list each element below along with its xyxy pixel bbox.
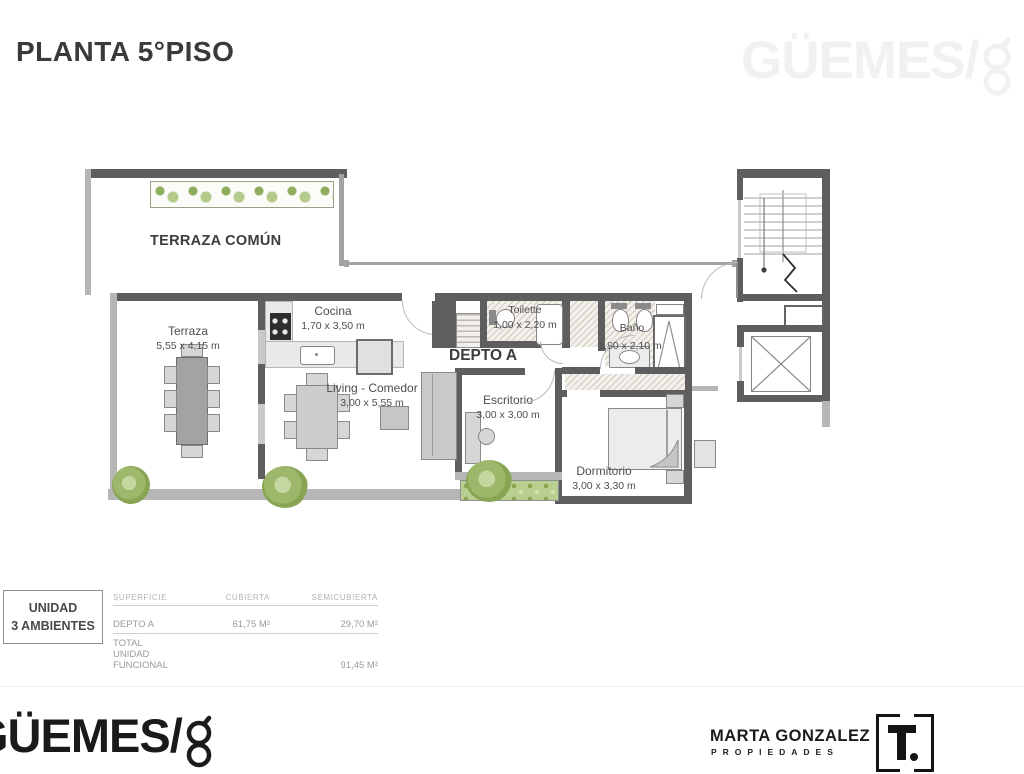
elevator-cab [751,336,811,392]
agency-tagline: PROPIEDADES [711,747,839,757]
room-label-bano: Baño [607,322,657,336]
unit-type-line1: UNIDAD [29,599,78,617]
appliance [356,339,393,375]
wall [258,293,265,479]
table-divider [113,605,378,606]
unit-type-line2: 3 AMBIENTES [11,617,95,635]
row-cubierta: 61,75 M² [175,619,270,630]
chair [207,390,220,408]
door-arc [402,301,436,335]
wall [110,293,117,499]
chair [181,445,203,458]
chair [164,414,177,432]
total-value: 91,45 M² [270,660,378,671]
wall [85,169,91,295]
wall [339,174,344,266]
room-label-cocina: Cocina 1,70 x 3,50 m [287,304,379,333]
sink-drain [315,353,318,356]
wall [822,401,830,427]
guemes-8-mark-icon [184,714,214,770]
wall [85,169,347,178]
elevator-x-icon [752,337,810,391]
t-logo-gap [900,768,914,774]
wall [562,390,567,397]
plant-bush [262,466,308,508]
header-superficie: SUPERFICIE [113,593,175,602]
plant-bush [112,466,150,504]
table-header-row: SUPERFICIE CUBIERTA SEMICUBIERTA [113,586,378,602]
nightstand [666,394,684,408]
bath-shelf [656,304,684,315]
wall [570,293,692,301]
ac-unit [694,440,716,468]
row-semicubierta: 29,70 M² [270,619,378,630]
chair [207,366,220,384]
chair [207,414,220,432]
chair [164,390,177,408]
wall [737,178,743,200]
unit-label: DEPTO A [449,347,517,365]
wall [557,496,692,504]
wall-stub [692,386,718,391]
wall-window [738,200,741,258]
guemes-wordmark: GÜEMES/ [0,708,182,763]
outdoor-table [176,357,208,445]
room-label-escritorio: Escritorio 3,00 x 3,00 m [460,393,556,422]
elevator-door [739,347,742,381]
sofa [421,372,457,460]
wall [822,169,830,401]
staircase-icon [744,184,822,294]
unit-type-box: UNIDAD 3 AMBIENTES [3,590,103,644]
room-label-toilette: Toilette 1,00 x 2,20 m [486,303,564,333]
table-row: DEPTO A 61,75 M² 29,70 M² [113,610,378,630]
t-logo-dot [910,753,918,761]
t-logo [876,714,934,772]
chair [164,366,177,384]
wall [737,395,830,402]
plant-bush [466,460,512,502]
room-label-terraza-comun: TERRAZA COMÚN [150,233,281,249]
wall [258,293,402,301]
wall [562,367,600,374]
guemes-logo: GÜEMES/ [0,708,214,770]
room-label-living: Living - Comedor 3,00 x 5,55 m [318,381,426,410]
total-label: TOTAL UNIDAD FUNCIONAL [113,638,175,671]
terrace-planter [150,181,334,208]
row-name: DEPTO A [113,619,175,630]
t-logo-gap [900,712,914,718]
door-arc [540,341,563,364]
railing-cap [344,260,349,267]
wall-window [258,330,265,364]
agency-name: MARTA GONZALEZ [710,727,870,746]
header-cubierta: CUBIERTA [175,593,270,602]
wall [737,325,744,347]
footer-divider [0,686,1024,687]
railing [344,262,737,265]
surface-table: SUPERFICIE CUBIERTA SEMICUBIERTA DEPTO A… [113,586,378,658]
wall [112,293,258,301]
chair [284,421,297,439]
wall [455,368,525,375]
desk-chair [478,428,495,445]
chair [337,421,350,439]
chair [306,448,328,461]
t-logo-stem [897,725,906,760]
door-arc [701,262,738,299]
room-label-terraza: Terraza 5,55 x 4,15 m [138,324,238,353]
wall [742,294,830,301]
table-total-row: TOTAL UNIDAD FUNCIONAL 91,45 M² [113,638,378,658]
table-divider [113,633,378,634]
wall [737,169,830,178]
nightstand [666,470,684,484]
chair [284,394,297,412]
wall [435,293,570,301]
wall-window [258,404,265,444]
sofa-cushion-line [432,374,433,456]
entry-steps [456,313,483,348]
passage-floor [565,374,685,390]
wall [737,325,830,332]
room-label-dormitorio: Dormitorio 3,00 x 3,30 m [552,464,656,493]
header-semicubierta: SEMICUBIERTA [270,593,378,602]
wall [635,367,692,374]
wall [432,301,456,348]
